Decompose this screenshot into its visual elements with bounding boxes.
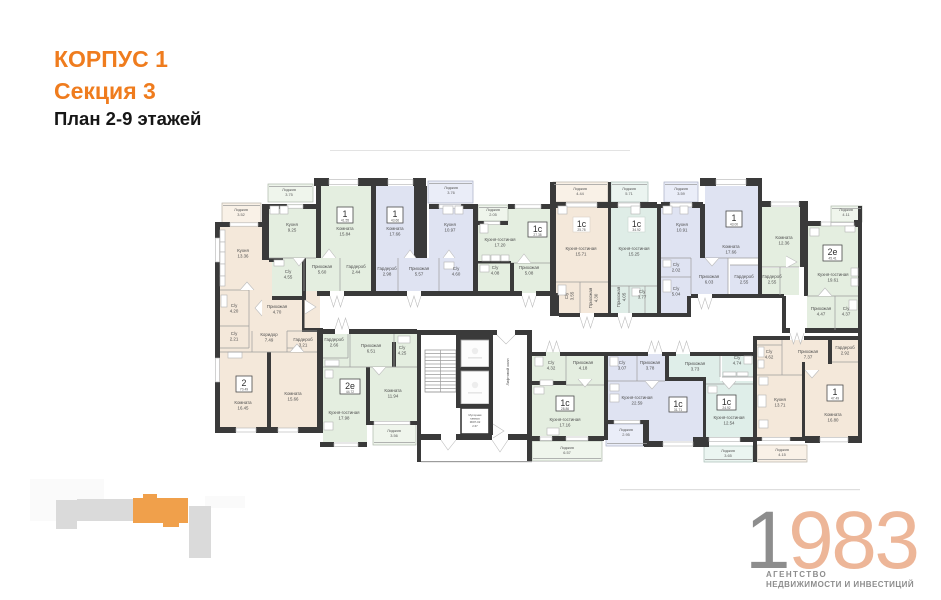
svg-text:43.00: 43.00 xyxy=(730,223,738,227)
svg-text:Кухня13.71: Кухня13.71 xyxy=(774,397,786,408)
svg-text:31.71: 31.71 xyxy=(674,408,682,412)
svg-text:41.55: 41.55 xyxy=(341,219,349,223)
svg-text:2: 2 xyxy=(242,378,247,388)
svg-text:24.92: 24.92 xyxy=(722,406,730,410)
svg-text:47.49: 47.49 xyxy=(831,397,839,401)
svg-text:Кухня10.91: Кухня10.91 xyxy=(676,222,688,233)
svg-text:44.72: 44.72 xyxy=(346,390,354,394)
svg-text:25.78: 25.78 xyxy=(577,228,585,232)
svg-text:1: 1 xyxy=(732,213,737,223)
svg-text:70.49: 70.49 xyxy=(240,388,248,392)
svg-text:34.92: 34.92 xyxy=(632,228,640,232)
svg-text:Кухня10.97: Кухня10.97 xyxy=(444,222,456,233)
svg-text:1: 1 xyxy=(393,209,398,219)
svg-text:27.38: 27.38 xyxy=(533,233,541,237)
svg-text:45.41: 45.41 xyxy=(828,256,836,260)
svg-text:1: 1 xyxy=(833,387,838,397)
svg-text:43.66: 43.66 xyxy=(391,219,399,223)
svg-text:1: 1 xyxy=(343,209,348,219)
svg-text:Кухня13.36: Кухня13.36 xyxy=(237,248,249,259)
svg-text:Лифтовой холл: Лифтовой холл xyxy=(506,358,510,385)
svg-text:28.86: 28.86 xyxy=(561,407,569,411)
